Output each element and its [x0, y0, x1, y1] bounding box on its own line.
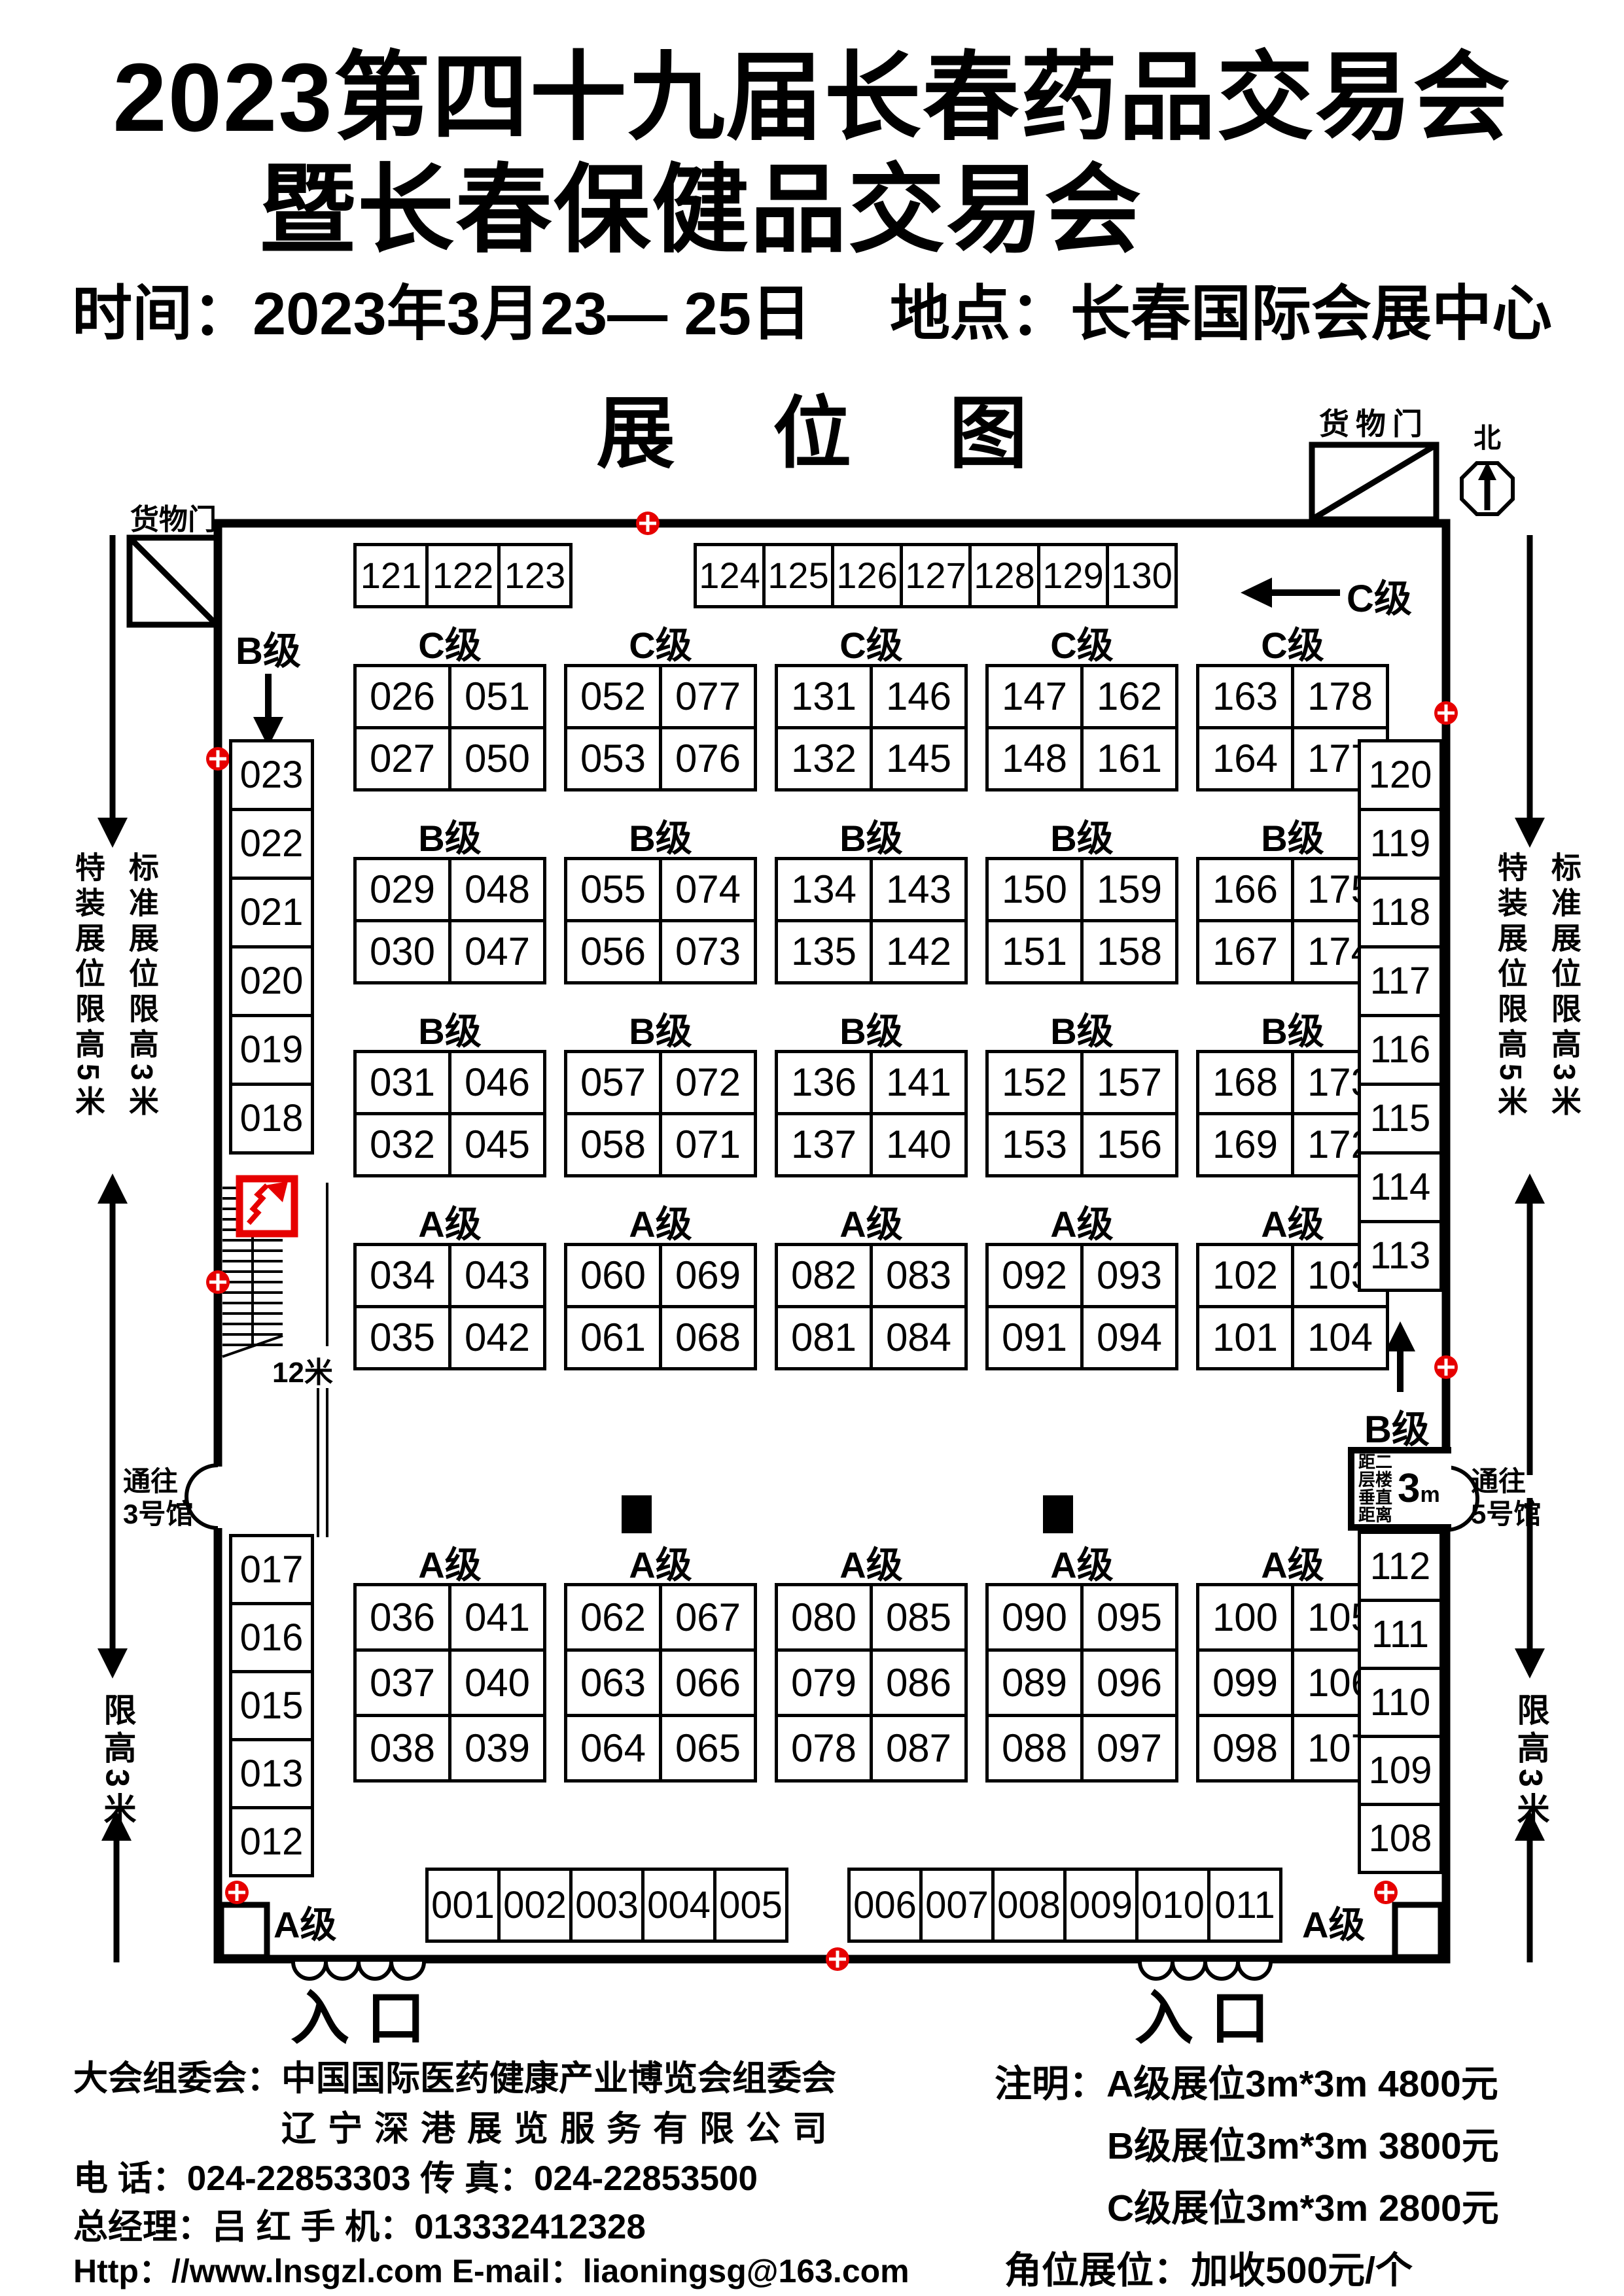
- booth-cell: 161: [1080, 726, 1178, 791]
- booth-cell: 121: [353, 543, 429, 608]
- booth-cell: 073: [659, 919, 757, 984]
- booth-cell: 087: [870, 1714, 968, 1783]
- booth-cell: 018: [229, 1083, 314, 1155]
- black-square-marker: [622, 1495, 652, 1533]
- booth-cell: 100: [1196, 1583, 1294, 1652]
- booth-cell: 047: [448, 919, 546, 984]
- price-note-label: 注明：: [995, 2063, 1106, 2105]
- register-mark-icon: [206, 1270, 230, 1294]
- booth-cell: 112: [1358, 1531, 1443, 1602]
- price-line-a: 注明：A级展位3m*3m 4800元: [995, 2054, 1498, 2108]
- booth-cell: 142: [870, 919, 968, 984]
- grade-label: C级: [564, 616, 757, 669]
- booth-cell: 061: [564, 1305, 662, 1370]
- booth-cell: 167: [1196, 919, 1294, 984]
- booth-cell: 062: [564, 1583, 662, 1652]
- booth-cell: 084: [870, 1305, 968, 1370]
- booth-cell: 064: [564, 1714, 662, 1783]
- cargo-door-right-label: 货物门: [1309, 400, 1439, 444]
- booth-cell: 146: [870, 664, 968, 729]
- booth-cell: 027: [353, 726, 451, 791]
- booth-cell: 005: [713, 1868, 788, 1943]
- booth-cell: 145: [870, 726, 968, 791]
- booth-cell: 051: [448, 664, 546, 729]
- booth-cell: 026: [353, 664, 451, 729]
- booth-cell: 086: [870, 1648, 968, 1717]
- booth-cell: 091: [985, 1305, 1084, 1370]
- booth-cell: 013: [229, 1738, 314, 1809]
- booth-cell: 168: [1196, 1050, 1294, 1115]
- height-limit-left: 限高3米: [98, 1693, 136, 1830]
- booth-cell: 006: [847, 1868, 923, 1943]
- booth-cell: 151: [985, 919, 1084, 984]
- booth-cell: 067: [659, 1583, 757, 1652]
- booth-cell: 095: [1080, 1583, 1178, 1652]
- booth-cell: 137: [775, 1112, 873, 1177]
- booth-cell: 164: [1196, 726, 1294, 791]
- booth-cell: 131: [775, 664, 873, 729]
- booth-cell: 032: [353, 1112, 451, 1177]
- booth-cell: 071: [659, 1112, 757, 1177]
- booth-cell: 136: [775, 1050, 873, 1115]
- register-mark-icon: [1434, 1355, 1458, 1379]
- grade-label: A级: [564, 1536, 757, 1589]
- booth-cell: 097: [1080, 1714, 1178, 1783]
- grade-label: B级: [985, 809, 1178, 862]
- note-standard-left: 标准展位限高3米: [124, 852, 159, 1121]
- booth-cell: 096: [1080, 1648, 1178, 1717]
- booth-cell: 128: [968, 543, 1040, 608]
- booth-cell: 157: [1080, 1050, 1178, 1115]
- booth-cell: 038: [353, 1714, 451, 1783]
- cargo-door-left-icon: [130, 538, 217, 625]
- note-standard-right: 标准展位限高3米: [1547, 852, 1581, 1121]
- booth-cell: 060: [564, 1243, 662, 1308]
- to-hall5-label: 通往 5号馆: [1471, 1465, 1541, 1530]
- organizer-line2: 辽宁深港展览服务有限公司: [281, 2101, 839, 2151]
- booth-cell: 110: [1358, 1667, 1443, 1738]
- booth-cell: 152: [985, 1050, 1084, 1115]
- c-grade-arrow-label: C级: [1347, 568, 1412, 623]
- booth-cell: 102: [1196, 1243, 1294, 1308]
- grade-label: A级: [775, 1195, 968, 1248]
- booth-cell: 030: [353, 919, 451, 984]
- booth-cell: 037: [353, 1648, 451, 1717]
- stair-width-label: 12米: [272, 1349, 333, 1391]
- booth-cell: 055: [564, 857, 662, 922]
- booth-cell: 069: [659, 1243, 757, 1308]
- grade-label: A级: [985, 1195, 1178, 1248]
- note-special-right: 特装展位限高5米: [1493, 852, 1528, 1121]
- escalator-icon: [239, 1179, 294, 1234]
- b-left-arrow-icon: [253, 674, 283, 747]
- booth-cell: 008: [991, 1868, 1067, 1943]
- booth-cell: 130: [1106, 543, 1178, 608]
- booth-cell: 169: [1196, 1112, 1294, 1177]
- booth-cell: 099: [1196, 1648, 1294, 1717]
- grade-label: C级: [775, 616, 968, 669]
- booth-cell: 007: [919, 1868, 995, 1943]
- corner-price-line: 角位展位：加收500元/个: [1004, 2240, 1413, 2294]
- booth-cell: 079: [775, 1648, 873, 1717]
- booth-cell: 120: [1358, 739, 1443, 811]
- booth-cell: 042: [448, 1305, 546, 1370]
- booth-cell: 135: [775, 919, 873, 984]
- c-grade-arrow-icon: [1241, 578, 1340, 608]
- phone-fax-line: 电 话：024-22853303 传 真：024-22853500: [73, 2151, 758, 2200]
- booth-cell: 076: [659, 726, 757, 791]
- organizer-line1: 大会组委会：中国国际医药健康产业博览会组委会: [73, 2051, 836, 2100]
- booth-cell: 081: [775, 1305, 873, 1370]
- b-right-arrow-icon: [1385, 1321, 1415, 1392]
- booth-cell: 012: [229, 1806, 314, 1877]
- booth-cell: 010: [1135, 1868, 1210, 1943]
- booth-cell: 021: [229, 877, 314, 948]
- north-compass-icon: [1462, 462, 1513, 514]
- note-special-left: 特装展位限高5米: [71, 852, 105, 1121]
- booth-cell: 123: [497, 543, 573, 608]
- grade-label: C级: [353, 616, 546, 669]
- a-grade-corner-left-label: A级: [274, 1896, 336, 1949]
- booth-cell: 004: [641, 1868, 716, 1943]
- register-mark-icon: [225, 1881, 249, 1904]
- booth-cell: 127: [900, 543, 972, 608]
- price-line-b: B级展位3m*3m 3800元: [1107, 2116, 1499, 2170]
- booth-cell: 166: [1196, 857, 1294, 922]
- register-mark-icon: [206, 747, 230, 771]
- grade-label: A级: [353, 1536, 546, 1589]
- booth-cell: 016: [229, 1602, 314, 1673]
- booth-cell: 009: [1063, 1868, 1139, 1943]
- web-email-line: Http：//www.lnsgzl.com E-mail：liaoningsg@…: [73, 2245, 909, 2292]
- booth-cell: 088: [985, 1714, 1084, 1783]
- booth-cell: 158: [1080, 919, 1178, 984]
- booth-cell: 039: [448, 1714, 546, 1783]
- booth-cell: 116: [1358, 1014, 1443, 1086]
- grade-label: B级: [353, 1002, 546, 1055]
- booth-cell: 036: [353, 1583, 451, 1652]
- booth-cell: 046: [448, 1050, 546, 1115]
- register-mark-icon: [1374, 1881, 1398, 1904]
- to-hall3-label: 通往 3号馆: [123, 1465, 193, 1530]
- booth-cell: 089: [985, 1648, 1084, 1717]
- grade-label: B级: [353, 809, 546, 862]
- booth-cell: 023: [229, 739, 314, 811]
- booth-cell: 031: [353, 1050, 451, 1115]
- booth-cell: 098: [1196, 1714, 1294, 1783]
- booth-cell: 019: [229, 1014, 314, 1086]
- booth-cell: 035: [353, 1305, 451, 1370]
- manager-line: 总经理：吕 红 手 机：013332412328: [73, 2199, 646, 2249]
- booth-cell: 085: [870, 1583, 968, 1652]
- booth-cell: 034: [353, 1243, 451, 1308]
- booth-cell: 124: [694, 543, 766, 608]
- grade-label: B级: [564, 1002, 757, 1055]
- booth-cell: 082: [775, 1243, 873, 1308]
- b-grade-left-label: B级: [219, 620, 317, 675]
- booth-cell: 111: [1358, 1599, 1443, 1670]
- booth-cell: 134: [775, 857, 873, 922]
- black-square-marker: [1043, 1495, 1073, 1533]
- booth-cell: 122: [425, 543, 501, 608]
- booth-cell: 143: [870, 857, 968, 922]
- b-grade-right-label: B级: [1349, 1399, 1445, 1453]
- booth-cell: 041: [448, 1583, 546, 1652]
- booth-cell: 117: [1358, 945, 1443, 1017]
- booth-cell: 129: [1037, 543, 1109, 608]
- booth-cell: 017: [229, 1534, 314, 1605]
- booth-cell: 090: [985, 1583, 1084, 1652]
- booth-cell: 029: [353, 857, 451, 922]
- booth-cell: 108: [1358, 1803, 1443, 1874]
- booth-cell: 156: [1080, 1112, 1178, 1177]
- booth-cell: 104: [1291, 1305, 1389, 1370]
- booth-cell: 020: [229, 945, 314, 1017]
- booth-cell: 140: [870, 1112, 968, 1177]
- booth-cell: 113: [1358, 1220, 1443, 1292]
- floor-distance-value: 3: [1398, 1466, 1420, 1511]
- booth-cell: 092: [985, 1243, 1084, 1308]
- corner-door-right-icon: [1395, 1905, 1441, 1957]
- booth-cell: 153: [985, 1112, 1084, 1177]
- booth-cell: 077: [659, 664, 757, 729]
- booth-cell: 053: [564, 726, 662, 791]
- a-grade-corner-right-label: A级: [1302, 1896, 1365, 1949]
- register-mark-icon: [826, 1947, 849, 1971]
- booth-cell: 141: [870, 1050, 968, 1115]
- register-mark-icon: [1434, 701, 1458, 725]
- cargo-door-left-label: 货物门: [124, 496, 222, 538]
- booth-cell: 063: [564, 1648, 662, 1717]
- register-mark-icon: [636, 512, 660, 535]
- booth-cell: 045: [448, 1112, 546, 1177]
- booth-cell: 150: [985, 857, 1084, 922]
- corner-door-left-icon: [221, 1905, 267, 1957]
- booth-cell: 132: [775, 726, 873, 791]
- booth-cell: 048: [448, 857, 546, 922]
- booth-cell: 058: [564, 1112, 662, 1177]
- booth-cell: 118: [1358, 877, 1443, 948]
- grade-label: C级: [1196, 616, 1389, 669]
- booth-cell: 040: [448, 1648, 546, 1717]
- booth-cell: 159: [1080, 857, 1178, 922]
- booth-cell: 052: [564, 664, 662, 729]
- entrance-left-label: 入口: [262, 1970, 471, 2055]
- north-label: 北: [1474, 416, 1501, 456]
- floor-distance-text: 距二层楼垂直距离: [1354, 1453, 1392, 1524]
- booth-cell: 072: [659, 1050, 757, 1115]
- booth-cell: 114: [1358, 1151, 1443, 1223]
- booth-cell: 080: [775, 1583, 873, 1652]
- booth-cell: 178: [1291, 664, 1389, 729]
- booth-cell: 093: [1080, 1243, 1178, 1308]
- booth-cell: 050: [448, 726, 546, 791]
- booth-cell: 078: [775, 1714, 873, 1783]
- booth-cell: 056: [564, 919, 662, 984]
- grade-label: B级: [775, 1002, 968, 1055]
- booth-cell: 022: [229, 808, 314, 880]
- booth-cell: 119: [1358, 808, 1443, 880]
- entrance-right-label: 入口: [1106, 1970, 1315, 2055]
- booth-cell: 074: [659, 857, 757, 922]
- grade-label: B级: [564, 809, 757, 862]
- booth-cell: 057: [564, 1050, 662, 1115]
- grade-label: A级: [564, 1195, 757, 1248]
- booth-cell: 148: [985, 726, 1084, 791]
- booth-cell: 109: [1358, 1735, 1443, 1806]
- booth-cell: 083: [870, 1243, 968, 1308]
- booth-cell: 126: [831, 543, 903, 608]
- booth-cell: 001: [425, 1868, 501, 1943]
- booth-cell: 066: [659, 1648, 757, 1717]
- booth-cell: 065: [659, 1714, 757, 1783]
- booth-cell: 162: [1080, 664, 1178, 729]
- booth-cell: 003: [569, 1868, 644, 1943]
- floor-distance-unit: m: [1421, 1482, 1440, 1507]
- grade-label: A级: [353, 1195, 546, 1248]
- booth-cell: 011: [1207, 1868, 1282, 1943]
- booth-cell: 147: [985, 664, 1084, 729]
- grade-label: C级: [985, 616, 1178, 669]
- exhibition-floorplan-poster: 2023第四十九届长春药品交易会 暨长春保健品交易会 时间： 2023年3月23…: [0, 0, 1624, 2296]
- height-limit-right: 限高3米: [1511, 1693, 1549, 1830]
- booth-cell: 043: [448, 1243, 546, 1308]
- booth-cell: 094: [1080, 1305, 1178, 1370]
- price-line-c: C级展位3m*3m 2800元: [1107, 2178, 1499, 2232]
- cargo-door-right-icon: [1312, 445, 1436, 519]
- booth-cell: 163: [1196, 664, 1294, 729]
- grade-label: B级: [985, 1002, 1178, 1055]
- booth-cell: 115: [1358, 1083, 1443, 1155]
- booth-cell: 002: [497, 1868, 573, 1943]
- booth-cell: 125: [762, 543, 834, 608]
- booth-cell: 101: [1196, 1305, 1294, 1370]
- booth-cell: 015: [229, 1670, 314, 1741]
- booth-cell: 068: [659, 1305, 757, 1370]
- grade-label: A级: [985, 1536, 1178, 1589]
- grade-label: A级: [775, 1536, 968, 1589]
- grade-label: B级: [775, 809, 968, 862]
- floor-distance-note: 距二层楼垂直距离 3m: [1348, 1447, 1451, 1531]
